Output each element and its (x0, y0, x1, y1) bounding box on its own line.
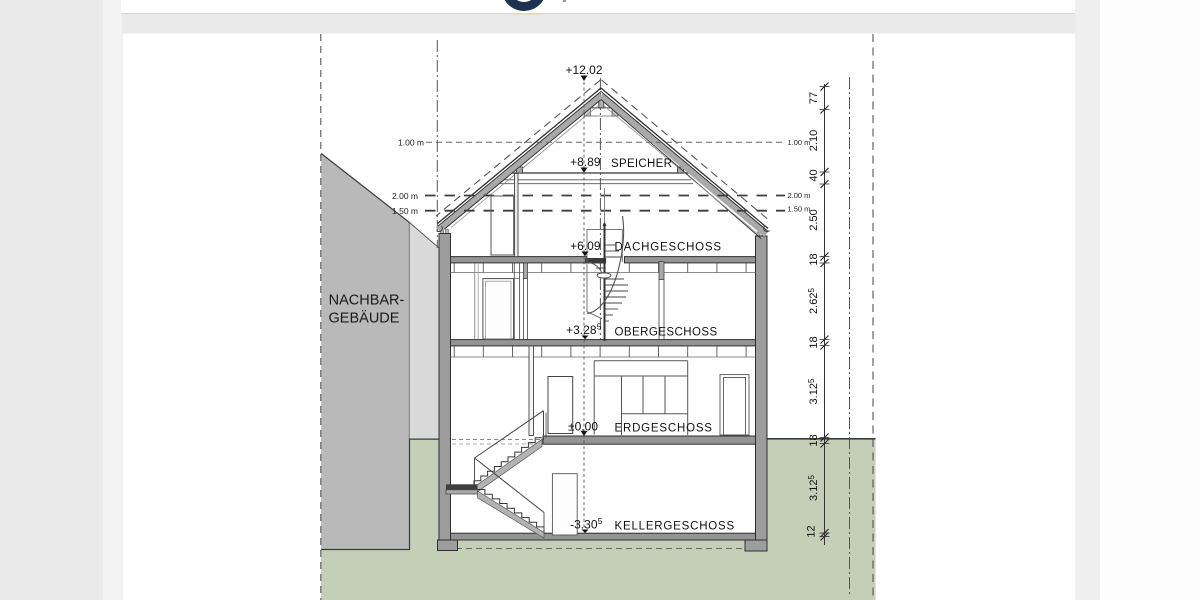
svg-text:2.00 m: 2.00 m (788, 191, 811, 200)
svg-text:+12.02: +12.02 (565, 63, 602, 77)
svg-text:1.50 m: 1.50 m (788, 204, 811, 213)
svg-text:18: 18 (808, 434, 820, 446)
svg-text:DACHGESCHOSS: DACHGESCHOSS (615, 242, 722, 254)
svg-text:+8.89: +8.89 (570, 155, 601, 169)
svg-text:12: 12 (806, 525, 818, 537)
svg-text:2.10: 2.10 (808, 130, 820, 151)
svg-text:+6.09: +6.09 (570, 239, 601, 253)
svg-text:5: 5 (598, 516, 603, 526)
svg-text:SPEICHER: SPEICHER (611, 158, 672, 170)
svg-text:1.00 m: 1.00 m (788, 138, 811, 147)
svg-text:KELLERGESCHOSS: KELLERGESCHOSS (615, 521, 736, 533)
svg-text:NACHBAR-: NACHBAR- (329, 293, 405, 309)
svg-text:GEBÄUDE: GEBÄUDE (329, 310, 400, 327)
svg-text:1.50 m: 1.50 m (392, 206, 418, 216)
svg-text:40: 40 (808, 169, 820, 181)
svg-text:77: 77 (808, 92, 820, 104)
svg-text:1.00 m: 1.00 m (398, 138, 424, 148)
svg-text:18: 18 (808, 336, 820, 348)
svg-text:2.50: 2.50 (808, 209, 820, 230)
svg-text:2.00 m: 2.00 m (392, 191, 418, 201)
svg-text:5: 5 (597, 322, 602, 332)
svg-text:+3.28: +3.28 (566, 323, 597, 337)
svg-text:ERDGESCHOSS: ERDGESCHOSS (615, 423, 713, 435)
svg-text:OBERGESCHOSS: OBERGESCHOSS (615, 327, 718, 339)
svg-text:-3.30: -3.30 (570, 518, 598, 532)
svg-text:18: 18 (808, 253, 820, 265)
